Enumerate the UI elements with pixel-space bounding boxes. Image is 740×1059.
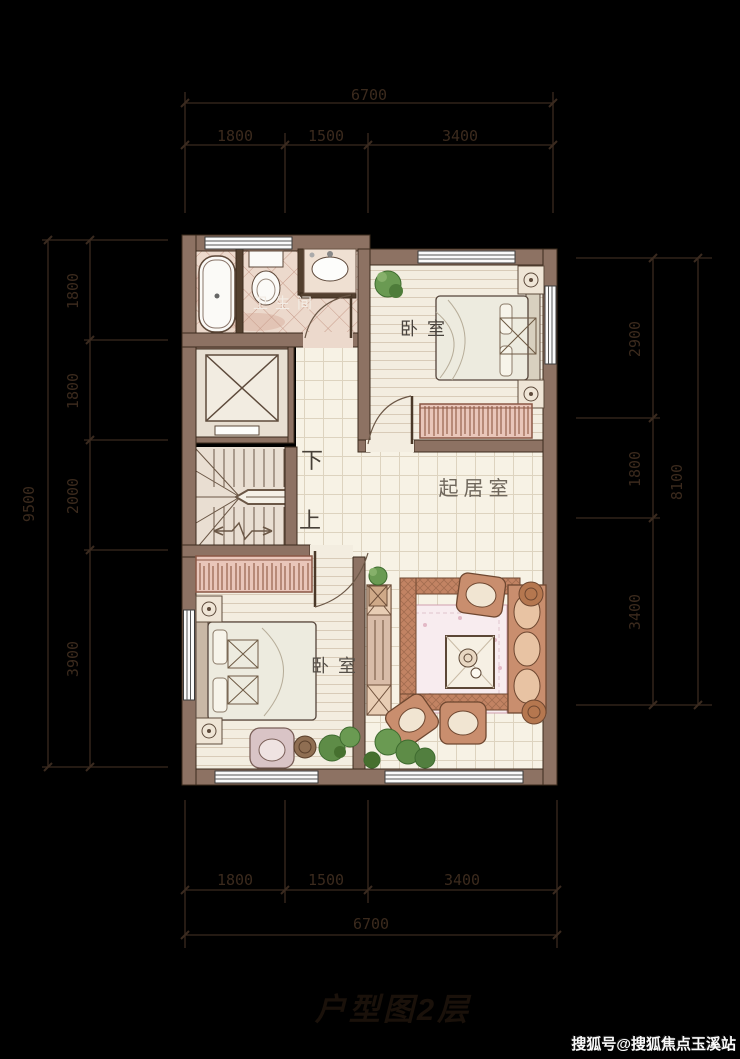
dim-bottom-seg1: 1800	[195, 872, 275, 889]
dim-left-seg3: 2000	[65, 466, 81, 526]
stool	[294, 736, 316, 758]
coffee-table	[446, 636, 494, 688]
floor-plan-image: 6700 1800 1500 3400 1800 1500 3400 6700 …	[0, 0, 740, 1059]
wardrobe-top-bedroom	[420, 404, 532, 438]
dim-bottom-total: 6700	[331, 916, 411, 933]
stair-label-down: 下	[299, 450, 325, 474]
bathtub	[199, 256, 235, 332]
dim-left-seg4: 3900	[65, 629, 81, 689]
window-bottom-living	[385, 771, 523, 783]
room-label-living: 起居室	[426, 477, 526, 499]
dim-right-seg2: 1800	[627, 439, 643, 499]
window-top-bathroom	[205, 237, 292, 249]
nightstand	[196, 718, 222, 744]
dim-left-total: 9500	[21, 474, 37, 534]
bed-bottom	[196, 618, 316, 726]
plant	[369, 567, 387, 585]
nightstand	[518, 266, 544, 294]
stair-label-up: 上	[297, 510, 323, 534]
window-left-bedroom	[184, 610, 195, 700]
armchair	[455, 572, 506, 618]
dim-top-seg3: 3400	[420, 128, 500, 145]
dim-bottom-seg3: 3400	[422, 872, 502, 889]
dim-right-seg1: 2900	[627, 309, 643, 369]
washbasin	[304, 249, 356, 293]
dim-left-seg1: 1800	[65, 261, 81, 321]
dim-top-seg1: 1800	[195, 128, 275, 145]
dim-top-seg2: 1500	[286, 128, 366, 145]
window-bottom-bedroom	[215, 771, 318, 783]
watermark: 搜狐号@搜狐焦点玉溪站	[550, 1037, 736, 1054]
plan-caption: 户型图2层	[243, 993, 543, 1027]
wardrobe-bottom-bedroom	[196, 556, 312, 592]
armchair	[250, 728, 294, 768]
dim-right-seg3: 3400	[627, 582, 643, 642]
dim-right-total: 8100	[669, 452, 685, 512]
window-right-bedroom	[545, 286, 556, 364]
dim-bottom-seg2: 1500	[286, 872, 366, 889]
room-label-bedroom-top: 卧室	[390, 320, 464, 340]
dim-top-total: 6700	[329, 87, 409, 104]
floor-plan-drawing	[0, 0, 740, 1059]
nightstand	[196, 596, 222, 622]
armchair	[440, 702, 486, 744]
window-top-bedroom	[418, 251, 515, 263]
room-label-bathroom: 卫生间	[244, 295, 328, 312]
room-label-bedroom-bottom: 卧室	[301, 657, 375, 677]
dim-left-seg2: 1800	[65, 361, 81, 421]
planter-box	[369, 586, 387, 606]
